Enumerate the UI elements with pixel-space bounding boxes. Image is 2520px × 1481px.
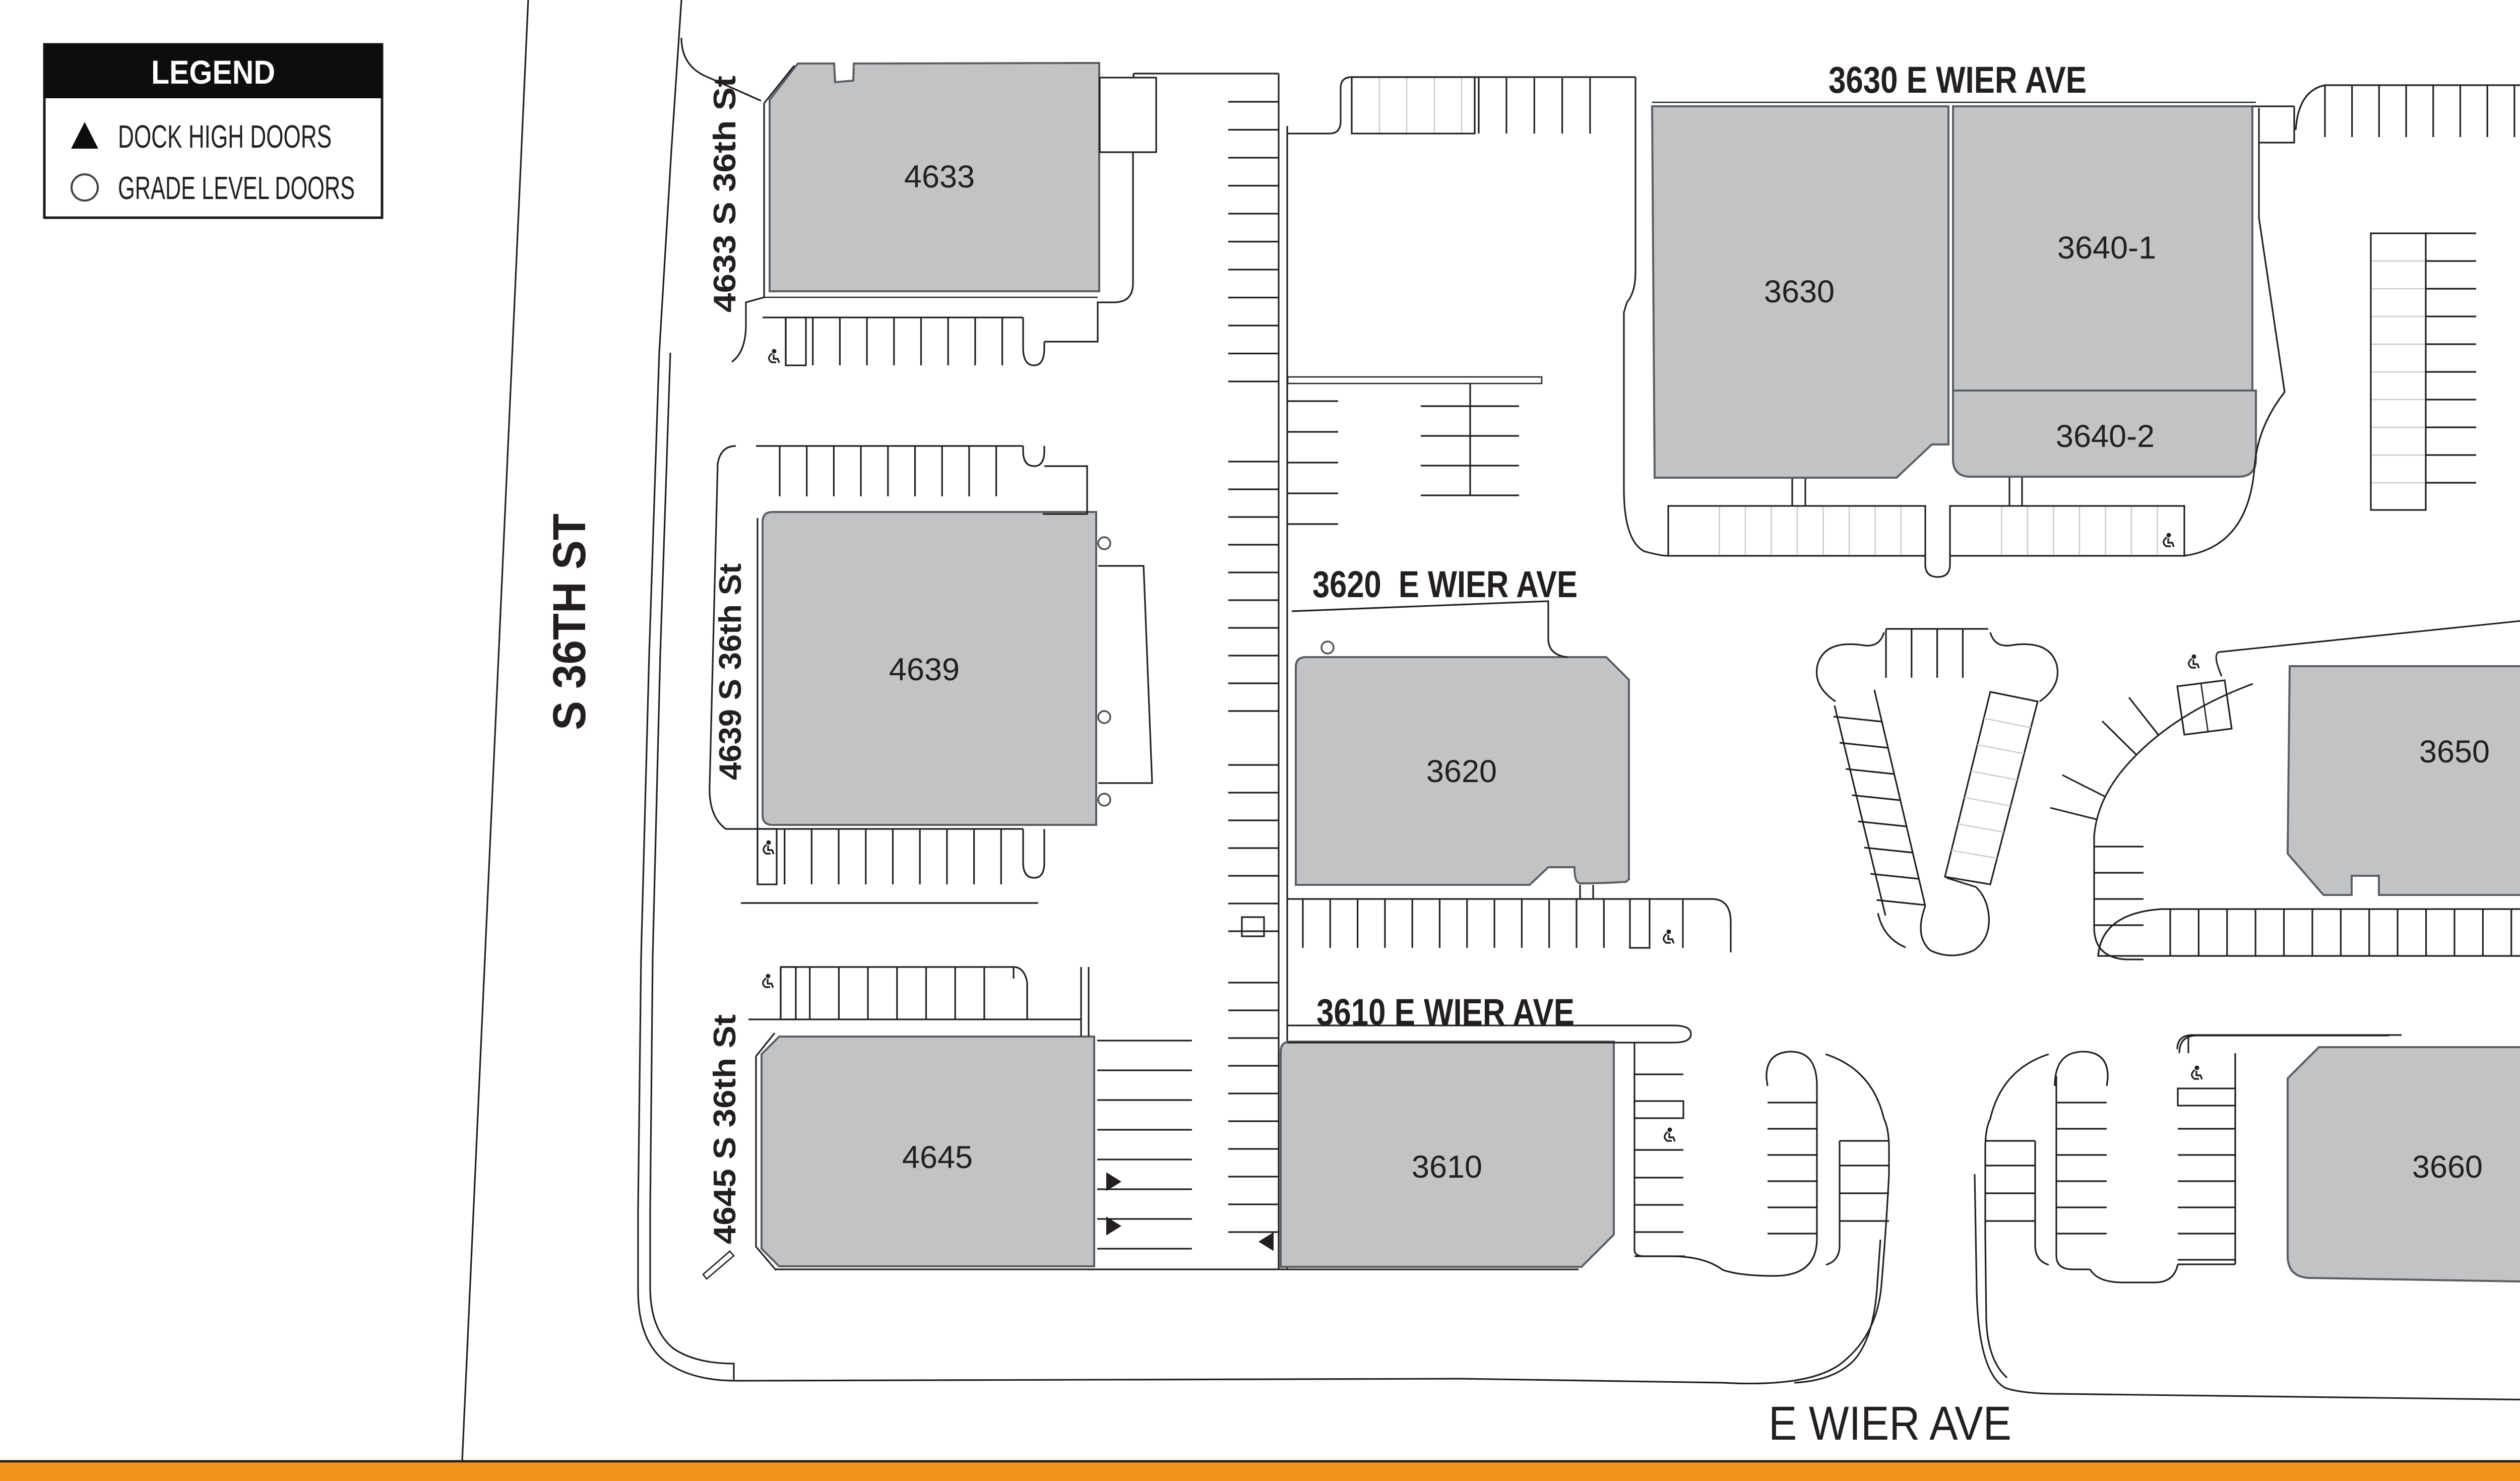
svg-text:E WIER AVE: E WIER AVE [1769, 1397, 2011, 1450]
svg-text:3640-1: 3640-1 [2057, 230, 2156, 266]
svg-text:DOCK HIGH DOORS: DOCK HIGH DOORS [118, 118, 332, 155]
svg-text:4639: 4639 [889, 652, 960, 687]
svg-text:3660: 3660 [2412, 1149, 2483, 1185]
svg-text:4633: 4633 [904, 159, 975, 195]
svg-text:3640-2: 3640-2 [2056, 419, 2155, 454]
svg-text:4645: 4645 [902, 1140, 973, 1175]
svg-text:3620: 3620 [1426, 754, 1497, 789]
svg-text:S 36TH ST: S 36TH ST [544, 513, 595, 730]
svg-text:4645 S 36th St: 4645 S 36th St [708, 1014, 742, 1244]
svg-text:LEGEND: LEGEND [151, 53, 275, 91]
svg-text:3610: 3610 [1412, 1149, 1482, 1185]
svg-text:GRADE LEVEL DOORS: GRADE LEVEL DOORS [118, 170, 355, 206]
svg-text:3610 E WIER AVE: 3610 E WIER AVE [1316, 991, 1574, 1033]
svg-text:4633 S 36th St: 4633 S 36th St [708, 76, 742, 312]
svg-text:3650: 3650 [2419, 734, 2490, 769]
svg-text:4639 S 36th St: 4639 S 36th St [713, 563, 748, 780]
svg-text:3630: 3630 [1764, 274, 1835, 309]
svg-text:3620 E WIER AVE: 3620 E WIER AVE [1312, 563, 1578, 605]
svg-text:3630 E WIER AVE: 3630 E WIER AVE [1829, 59, 2087, 101]
